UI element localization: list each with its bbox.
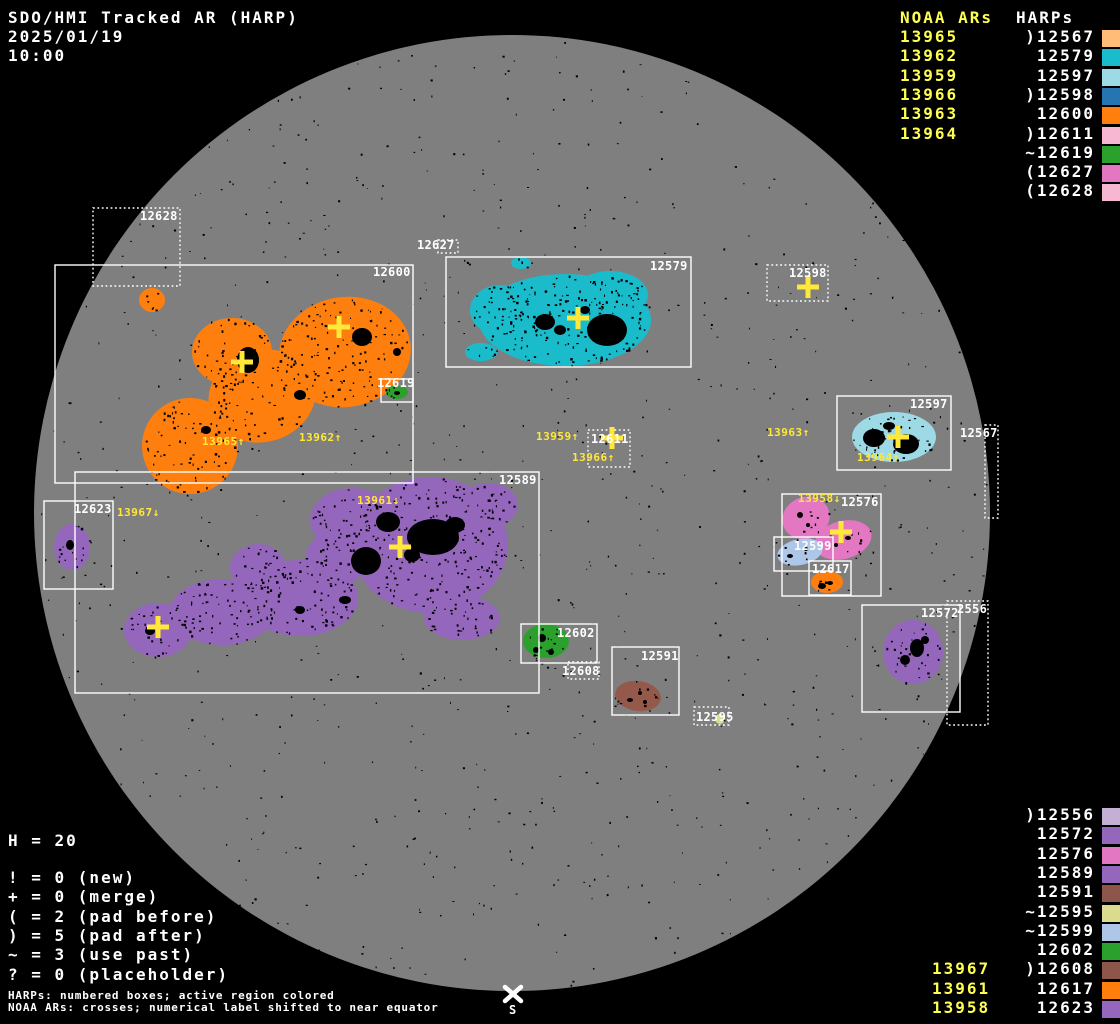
magnetogram-speckle <box>569 335 570 336</box>
disk-speckle <box>121 783 122 785</box>
disk-speckle <box>953 631 955 632</box>
sunspot-12591 <box>627 698 633 702</box>
magnetogram-speckle <box>266 617 267 619</box>
magnetogram-speckle <box>534 294 535 296</box>
sunspot-12600 <box>352 328 372 346</box>
disk-speckle <box>239 905 241 906</box>
harp-list-item-12598: )12598 <box>1000 86 1095 104</box>
disk-speckle <box>256 714 258 716</box>
disk-speckle <box>445 492 446 494</box>
disk-speckle <box>933 422 935 424</box>
disk-speckle <box>591 842 592 843</box>
magnetogram-speckle <box>389 524 390 525</box>
disk-speckle <box>245 880 246 881</box>
disk-speckle <box>549 689 550 690</box>
disk-speckle <box>572 981 574 983</box>
magnetogram-speckle <box>502 510 504 512</box>
magnetogram-speckle <box>185 428 186 429</box>
disk-speckle <box>657 801 658 803</box>
disk-speckle <box>369 380 370 382</box>
magnetogram-speckle <box>241 381 242 383</box>
magnetogram-speckle <box>466 510 467 511</box>
disk-speckle <box>338 674 339 675</box>
disk-speckle <box>717 874 719 876</box>
disk-speckle <box>280 124 282 125</box>
magnetogram-speckle <box>555 304 557 306</box>
disk-speckle <box>594 879 595 881</box>
magnetogram-speckle <box>298 416 300 417</box>
disk-speckle <box>416 405 418 407</box>
disk-speckle <box>649 710 650 712</box>
disk-speckle <box>666 697 668 698</box>
magnetogram-speckle <box>210 594 212 595</box>
south-pole-label: S <box>509 1003 516 1017</box>
disk-speckle <box>376 966 377 968</box>
magnetogram-speckle <box>173 421 174 424</box>
magnetogram-speckle <box>598 327 599 330</box>
magnetogram-speckle <box>616 290 617 292</box>
disk-speckle <box>500 207 501 209</box>
magnetogram-speckle <box>513 506 515 508</box>
magnetogram-speckle <box>256 584 257 586</box>
magnetogram-speckle <box>620 703 623 704</box>
magnetogram-speckle <box>326 559 327 562</box>
magnetogram-speckle <box>476 311 477 312</box>
magnetogram-speckle <box>515 338 516 340</box>
magnetogram-speckle <box>411 572 413 574</box>
magnetogram-speckle <box>216 597 217 598</box>
magnetogram-speckle <box>897 663 898 666</box>
magnetogram-speckle <box>596 304 597 306</box>
magnetogram-speckle <box>402 330 404 332</box>
disk-speckle <box>78 526 80 527</box>
magnetogram-speckle <box>326 372 328 374</box>
magnetogram-speckle <box>327 579 329 580</box>
disk-speckle <box>923 754 924 755</box>
disk-speckle <box>775 366 776 368</box>
active-region-12589 <box>458 483 518 527</box>
legend-line-1: + = 0 (merge) <box>8 887 159 906</box>
magnetogram-speckle <box>494 316 495 318</box>
disk-speckle <box>474 479 476 480</box>
magnetogram-speckle <box>457 540 459 542</box>
magnetogram-speckle <box>905 648 907 650</box>
disk-speckle <box>527 187 529 188</box>
magnetogram-speckle <box>589 312 590 314</box>
disk-speckle <box>953 574 955 575</box>
disk-speckle <box>730 899 731 901</box>
magnetogram-speckle <box>485 513 487 514</box>
magnetogram-speckle <box>143 615 145 617</box>
disk-speckle <box>436 607 437 609</box>
magnetogram-speckle <box>502 308 504 310</box>
disk-speckle <box>566 286 567 287</box>
magnetogram-speckle <box>326 348 329 350</box>
magnetogram-speckle <box>517 295 519 297</box>
disk-speckle <box>515 733 516 734</box>
magnetogram-speckle <box>492 531 494 533</box>
disk-speckle <box>639 504 640 505</box>
disk-speckle <box>657 698 658 699</box>
magnetogram-speckle <box>908 420 910 421</box>
sunspot-12576 <box>806 523 810 527</box>
magnetogram-speckle <box>220 405 222 407</box>
magnetogram-speckle <box>527 303 529 305</box>
disk-speckle <box>143 782 144 783</box>
magnetogram-speckle <box>295 324 297 325</box>
noaa-list-item-13961: 13961 <box>932 980 990 998</box>
disk-speckle <box>938 674 940 675</box>
magnetogram-speckle <box>350 571 351 573</box>
magnetogram-speckle <box>597 319 599 320</box>
disk-speckle <box>307 573 308 574</box>
magnetogram-speckle <box>343 520 345 522</box>
magnetogram-speckle <box>235 379 237 381</box>
disk-speckle <box>284 162 286 164</box>
disk-speckle <box>778 287 779 289</box>
magnetogram-speckle <box>401 600 404 601</box>
disk-speckle <box>842 749 843 750</box>
magnetogram-speckle <box>593 283 595 284</box>
magnetogram-speckle <box>276 631 277 633</box>
disk-speckle <box>146 441 148 443</box>
disk-speckle <box>592 100 593 102</box>
magnetogram-speckle <box>611 291 613 293</box>
magnetogram-speckle <box>229 403 230 404</box>
magnetogram-speckle <box>236 371 237 373</box>
disk-speckle <box>758 546 760 547</box>
disk-speckle <box>423 734 424 735</box>
disk-speckle <box>299 238 301 240</box>
magnetogram-speckle <box>521 347 523 348</box>
disk-speckle <box>94 562 96 564</box>
magnetogram-speckle <box>484 486 486 488</box>
disk-speckle <box>816 709 817 711</box>
disk-speckle <box>983 549 984 550</box>
magnetogram-speckle <box>521 340 522 341</box>
magnetogram-speckle <box>197 491 200 493</box>
disk-speckle <box>200 540 202 542</box>
disk-speckle <box>379 67 381 68</box>
disk-speckle <box>61 578 63 579</box>
harp-color-swatch-12567 <box>1102 30 1120 47</box>
disk-speckle <box>69 677 70 678</box>
magnetogram-speckle <box>221 413 223 415</box>
magnetogram-speckle <box>327 332 328 334</box>
disk-speckle <box>354 452 356 454</box>
magnetogram-speckle <box>344 500 346 502</box>
disk-speckle <box>390 473 391 475</box>
magnetogram-speckle <box>288 357 289 359</box>
magnetogram-speckle <box>859 551 860 553</box>
disk-speckle <box>624 631 625 632</box>
magnetogram-speckle <box>412 561 414 563</box>
disk-speckle <box>853 299 855 300</box>
disk-speckle <box>918 695 920 697</box>
magnetogram-speckle <box>294 378 295 380</box>
magnetogram-speckle <box>325 619 327 621</box>
disk-speckle <box>300 659 302 660</box>
disk-speckle <box>720 825 722 826</box>
disk-speckle <box>41 513 42 515</box>
disk-speckle <box>875 216 877 218</box>
magnetogram-speckle <box>338 406 340 407</box>
magnetogram-speckle <box>487 517 490 519</box>
magnetogram-speckle <box>322 549 324 551</box>
disk-speckle <box>792 409 794 410</box>
magnetogram-speckle <box>146 295 148 297</box>
magnetogram-speckle <box>568 343 569 345</box>
magnetogram-speckle <box>302 620 304 622</box>
magnetogram-speckle <box>436 515 437 516</box>
disk-speckle <box>824 392 826 394</box>
disk-speckle <box>638 298 640 299</box>
magnetogram-speckle <box>521 337 523 339</box>
noaa-ar-label-13967: 13967↓ <box>117 507 160 518</box>
magnetogram-speckle <box>456 565 458 567</box>
disk-speckle <box>799 605 800 606</box>
disk-speckle <box>513 287 514 288</box>
magnetogram-speckle <box>391 565 393 567</box>
magnetogram-speckle <box>408 561 411 563</box>
disk-speckle <box>479 903 480 904</box>
magnetogram-speckle <box>880 431 881 433</box>
magnetogram-speckle <box>549 305 550 306</box>
harp-color-swatch-12600 <box>1102 107 1120 124</box>
magnetogram-speckle <box>622 338 624 339</box>
magnetogram-speckle <box>234 383 236 386</box>
disk-speckle <box>367 188 368 189</box>
disk-speckle <box>288 223 290 224</box>
magnetogram-speckle <box>206 601 208 603</box>
disk-speckle <box>489 534 491 536</box>
disk-speckle <box>582 715 584 716</box>
magnetogram-speckle <box>377 555 379 558</box>
magnetogram-speckle <box>307 566 309 567</box>
disk-speckle <box>742 639 744 640</box>
harp-box-label-12556: 2556 <box>957 603 987 615</box>
disk-speckle <box>136 572 137 574</box>
disk-speckle <box>814 634 815 636</box>
magnetogram-speckle <box>332 612 334 614</box>
magnetogram-speckle <box>528 316 529 318</box>
disk-speckle <box>303 233 305 234</box>
noaa-list-item-13963: 13963 <box>900 105 958 123</box>
magnetogram-speckle <box>254 372 256 373</box>
magnetogram-speckle <box>226 416 228 418</box>
disk-speckle <box>756 478 757 479</box>
harp-color-swatch-12628 <box>1102 184 1120 201</box>
disk-speckle <box>825 843 827 844</box>
disk-speckle <box>354 364 356 365</box>
disk-speckle <box>280 201 281 203</box>
magnetogram-speckle <box>609 354 611 355</box>
magnetogram-speckle <box>299 570 301 573</box>
disk-speckle <box>718 440 720 442</box>
disk-speckle <box>277 923 278 924</box>
magnetogram-speckle <box>188 414 189 415</box>
disk-speckle <box>796 329 798 330</box>
disk-speckle <box>591 898 592 899</box>
magnetogram-speckle <box>245 419 246 420</box>
disk-speckle <box>554 811 555 812</box>
magnetogram-speckle <box>496 505 497 507</box>
magnetogram-speckle <box>175 411 177 413</box>
magnetogram-speckle <box>320 550 322 552</box>
magnetogram-speckle <box>455 497 457 498</box>
disk-speckle <box>744 490 746 492</box>
disk-speckle <box>258 435 260 437</box>
disk-speckle <box>553 807 554 809</box>
magnetogram-speckle <box>625 280 627 282</box>
magnetogram-speckle <box>490 615 492 617</box>
magnetogram-speckle <box>365 541 367 543</box>
magnetogram-speckle <box>363 515 365 517</box>
disk-speckle <box>523 824 525 826</box>
magnetogram-speckle <box>534 356 536 358</box>
magnetogram-speckle <box>541 638 542 640</box>
disk-speckle <box>187 495 189 497</box>
disk-speckle <box>251 448 253 450</box>
disk-speckle <box>412 839 414 840</box>
magnetogram-speckle <box>362 369 364 370</box>
disk-speckle <box>509 660 510 661</box>
magnetogram-speckle <box>336 570 338 572</box>
magnetogram-speckle <box>209 643 210 644</box>
disk-speckle <box>627 89 629 91</box>
magnetogram-speckle <box>457 572 459 574</box>
disk-speckle <box>908 363 909 365</box>
magnetogram-speckle <box>294 360 296 362</box>
magnetogram-speckle <box>338 371 340 372</box>
disk-speckle <box>381 198 382 200</box>
disk-speckle <box>624 197 626 198</box>
disk-speckle <box>889 588 891 590</box>
disk-speckle <box>463 333 465 334</box>
disk-speckle <box>424 863 425 865</box>
magnetogram-speckle <box>352 362 354 364</box>
disk-speckle <box>158 386 160 388</box>
disk-speckle <box>550 530 552 531</box>
magnetogram-speckle <box>286 370 288 372</box>
magnetogram-speckle <box>887 419 889 421</box>
noaa-cross-icon <box>839 521 844 543</box>
sunspot-12572 <box>900 655 910 665</box>
magnetogram-speckle <box>928 443 930 446</box>
magnetogram-speckle <box>351 340 353 341</box>
disk-speckle <box>940 416 941 418</box>
disk-speckle <box>338 200 340 202</box>
magnetogram-speckle <box>271 384 272 386</box>
magnetogram-speckle <box>815 523 816 526</box>
noaa-cross-icon <box>576 307 581 329</box>
disk-speckle <box>615 565 617 567</box>
magnetogram-speckle <box>344 398 345 400</box>
disk-speckle <box>348 88 350 90</box>
disk-speckle <box>474 67 475 68</box>
disk-speckle <box>252 902 253 904</box>
magnetogram-speckle <box>494 561 496 564</box>
disk-speckle <box>410 967 411 969</box>
disk-speckle <box>162 652 164 654</box>
disk-speckle <box>491 478 492 479</box>
magnetogram-speckle <box>872 428 873 430</box>
magnetogram-speckle <box>602 304 604 305</box>
magnetogram-speckle <box>458 525 459 527</box>
magnetogram-speckle <box>359 369 361 371</box>
magnetogram-speckle <box>425 575 426 577</box>
magnetogram-speckle <box>198 346 199 347</box>
magnetogram-speckle <box>370 509 371 511</box>
magnetogram-speckle <box>459 497 461 499</box>
disk-speckle <box>669 409 671 410</box>
disk-speckle <box>410 460 412 461</box>
magnetogram-speckle <box>895 671 896 673</box>
magnetogram-speckle <box>206 487 207 490</box>
magnetogram-speckle <box>890 417 892 419</box>
magnetogram-speckle <box>260 549 262 550</box>
disk-speckle <box>77 671 79 673</box>
magnetogram-speckle <box>601 283 602 285</box>
magnetogram-speckle <box>655 696 657 698</box>
disk-speckle <box>607 876 609 877</box>
disk-speckle <box>484 769 485 770</box>
disk-speckle <box>523 425 524 427</box>
disk-speckle <box>295 847 297 848</box>
magnetogram-speckle <box>234 323 236 326</box>
magnetogram-speckle <box>415 483 418 485</box>
disk-speckle <box>916 698 918 700</box>
disk-speckle <box>195 195 196 196</box>
disk-speckle <box>551 648 552 650</box>
harp-plot: SDO/HMI Tracked AR (HARP) 2025/01/19 10:… <box>0 0 1120 1024</box>
disk-speckle <box>773 179 775 180</box>
disk-speckle <box>434 680 436 681</box>
disk-speckle <box>558 205 560 207</box>
magnetogram-speckle <box>195 477 196 480</box>
disk-speckle <box>498 821 500 822</box>
magnetogram-speckle <box>379 528 381 530</box>
magnetogram-speckle <box>311 338 313 340</box>
disk-speckle <box>874 466 876 468</box>
magnetogram-speckle <box>457 624 459 626</box>
magnetogram-speckle <box>491 571 492 573</box>
magnetogram-speckle <box>259 335 261 337</box>
harp-color-swatch-12608 <box>1102 962 1120 979</box>
disk-speckle <box>376 821 377 823</box>
disk-speckle <box>873 785 874 787</box>
magnetogram-speckle <box>342 582 344 584</box>
magnetogram-speckle <box>345 366 346 368</box>
disk-speckle <box>585 226 586 227</box>
magnetogram-speckle <box>164 412 166 415</box>
disk-speckle <box>885 485 886 486</box>
disk-speckle <box>463 529 464 530</box>
disk-speckle <box>266 212 268 213</box>
magnetogram-speckle <box>218 373 219 374</box>
disk-speckle <box>824 770 826 772</box>
magnetogram-speckle <box>315 307 316 308</box>
disk-speckle <box>420 672 422 674</box>
magnetogram-speckle <box>540 647 542 649</box>
magnetogram-speckle <box>160 455 161 457</box>
disk-speckle <box>541 798 542 799</box>
magnetogram-speckle <box>615 336 616 338</box>
disk-speckle <box>964 440 966 442</box>
magnetogram-speckle <box>334 302 336 303</box>
disk-speckle <box>474 325 475 327</box>
magnetogram-speckle <box>323 506 325 507</box>
